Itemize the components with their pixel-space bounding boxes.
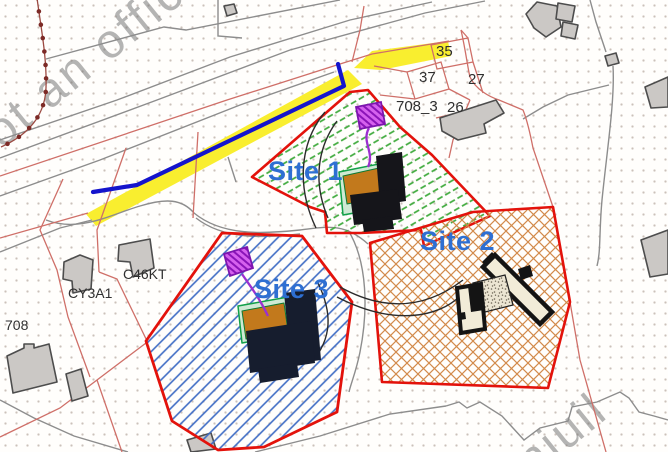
parcel-label-35: 35 bbox=[436, 44, 453, 59]
building-bottom-left-small bbox=[66, 369, 88, 401]
site-3-label: Site 3 bbox=[254, 276, 329, 303]
site-location-map: s not an offici niuil bbox=[0, 0, 668, 452]
building-right-edge-top bbox=[645, 77, 668, 108]
map-geometry bbox=[0, 0, 668, 452]
survey-marker-icon-site1 bbox=[356, 102, 385, 129]
parcel-label-26: 26 bbox=[447, 100, 464, 115]
building-bottom-left bbox=[7, 344, 57, 393]
dotted-boundary-line bbox=[1, 0, 46, 147]
utility-box bbox=[605, 53, 619, 66]
parcel-label-cy3a1: CY3A1 bbox=[68, 286, 112, 300]
site-2-label: Site 2 bbox=[420, 228, 495, 255]
building-top-left-fragment bbox=[224, 4, 237, 16]
parcel-label-37: 37 bbox=[419, 70, 436, 85]
site-1-label: Site 1 bbox=[268, 158, 343, 185]
parcel-label-27: 27 bbox=[468, 72, 485, 87]
building-top-right-annex bbox=[556, 3, 575, 22]
parcel-label-c46kt: C46KT bbox=[123, 267, 167, 281]
building-right-edge-mid bbox=[641, 230, 668, 277]
parcel-label-708-3: 708_3 bbox=[396, 99, 438, 114]
building-top-right-annex2 bbox=[561, 22, 578, 39]
parcel-label-708: 708 bbox=[5, 318, 28, 332]
